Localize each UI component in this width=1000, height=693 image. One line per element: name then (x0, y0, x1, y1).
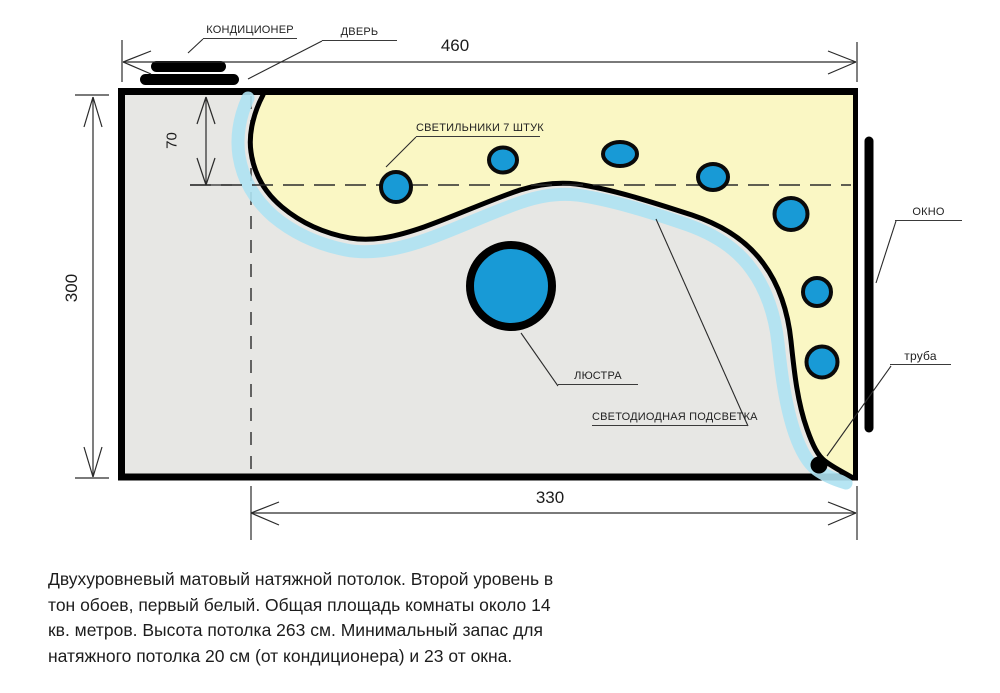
spotlight (807, 347, 838, 378)
description-line: тон обоев, первый белый. Общая площадь к… (48, 593, 553, 619)
door-label: ДВЕРЬ (322, 26, 397, 41)
dimension-value-300: 300 (62, 266, 82, 310)
ceiling-plan-canvas: КОНДИЦИОНЕР ДВЕРЬ СВЕТИЛЬНИКИ 7 ШТУК ОКН… (0, 0, 1000, 693)
spotlight (489, 148, 517, 173)
description-line: Двухуровневый матовый натяжной потолок. … (48, 567, 553, 593)
spotlight (381, 172, 411, 202)
spotlight (803, 278, 831, 306)
window-label: ОКНО (895, 206, 962, 221)
spotlight (603, 142, 637, 166)
air-conditioner-label: КОНДИЦИОНЕР (203, 24, 297, 39)
dimension-value-70: 70 (164, 121, 181, 161)
pipe-shape (811, 457, 828, 474)
description-line: кв. метров. Высота потолка 263 см. Миним… (48, 618, 553, 644)
dimension-value-460: 460 (425, 36, 485, 56)
description-line: натяжного потолка 20 см (от кондиционера… (48, 644, 553, 670)
dimension-value-330: 330 (520, 488, 580, 508)
description-text: Двухуровневый матовый натяжной потолок. … (48, 567, 553, 669)
led-strip-label: СВЕТОДИОДНАЯ ПОДСВЕТКА (592, 411, 748, 426)
chandelier-label: ЛЮСТРА (558, 370, 638, 385)
chandelier-shape (470, 245, 552, 327)
door-shape (140, 74, 239, 85)
spotlight (698, 164, 728, 190)
air-conditioner-shape (151, 61, 226, 72)
spotlights-label: СВЕТИЛЬНИКИ 7 ШТУК (416, 122, 540, 137)
spotlight (775, 198, 808, 230)
pipe-label: труба (890, 350, 951, 365)
